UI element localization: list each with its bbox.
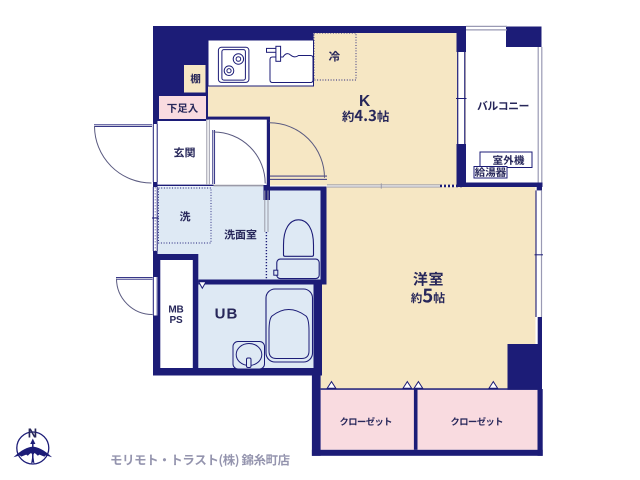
svg-text:K: K <box>359 93 371 110</box>
svg-text:UB: UB <box>215 306 239 323</box>
svg-text:PS: PS <box>170 315 183 326</box>
svg-text:N: N <box>28 426 37 441</box>
